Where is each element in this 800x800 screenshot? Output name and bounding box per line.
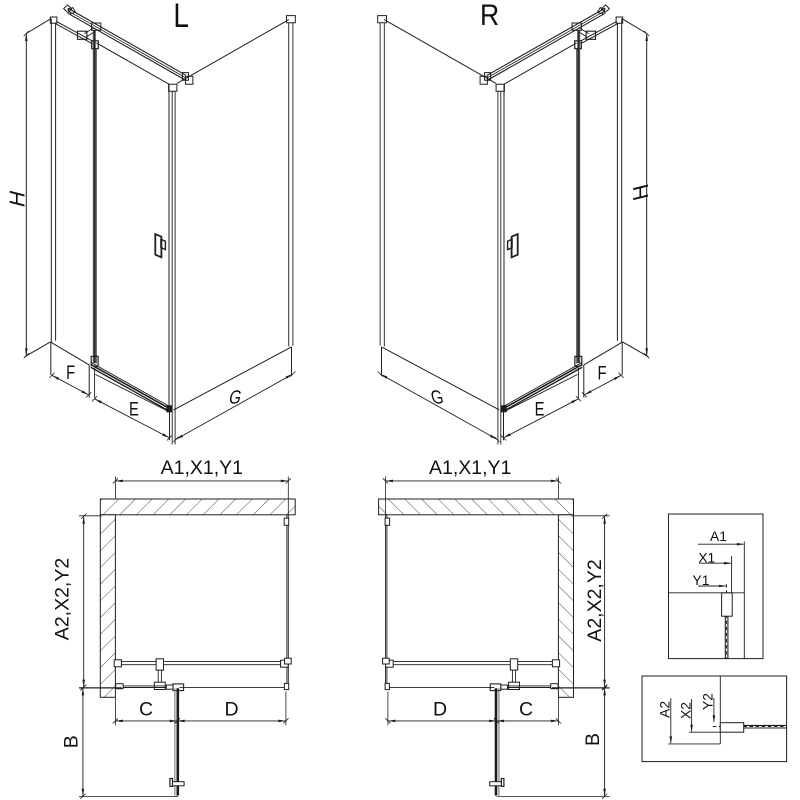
svg-text:A2: A2 [657, 701, 672, 718]
svg-text:A1,X1,Y1: A1,X1,Y1 [161, 457, 243, 479]
svg-text:C: C [519, 698, 533, 720]
svg-text:E: E [129, 399, 139, 420]
svg-text:A2,X2,Y2: A2,X2,Y2 [584, 559, 606, 641]
svg-text:X2: X2 [679, 702, 694, 719]
svg-text:F: F [597, 363, 606, 384]
svg-text:L: L [173, 0, 189, 35]
svg-text:R: R [480, 0, 499, 31]
svg-text:Y1: Y1 [693, 573, 710, 588]
svg-text:A2,X2,Y2: A2,X2,Y2 [52, 558, 74, 640]
svg-text:A1,X1,Y1: A1,X1,Y1 [429, 457, 511, 479]
svg-text:E: E [535, 399, 545, 420]
svg-text:X1: X1 [698, 550, 715, 565]
svg-text:Y2: Y2 [701, 693, 716, 710]
svg-text:C: C [139, 698, 153, 720]
svg-text:F: F [66, 362, 75, 383]
svg-text:D: D [224, 698, 238, 720]
svg-text:B: B [582, 733, 604, 746]
svg-text:D: D [433, 698, 447, 720]
svg-text:A1: A1 [710, 529, 727, 544]
svg-text:B: B [61, 735, 83, 748]
